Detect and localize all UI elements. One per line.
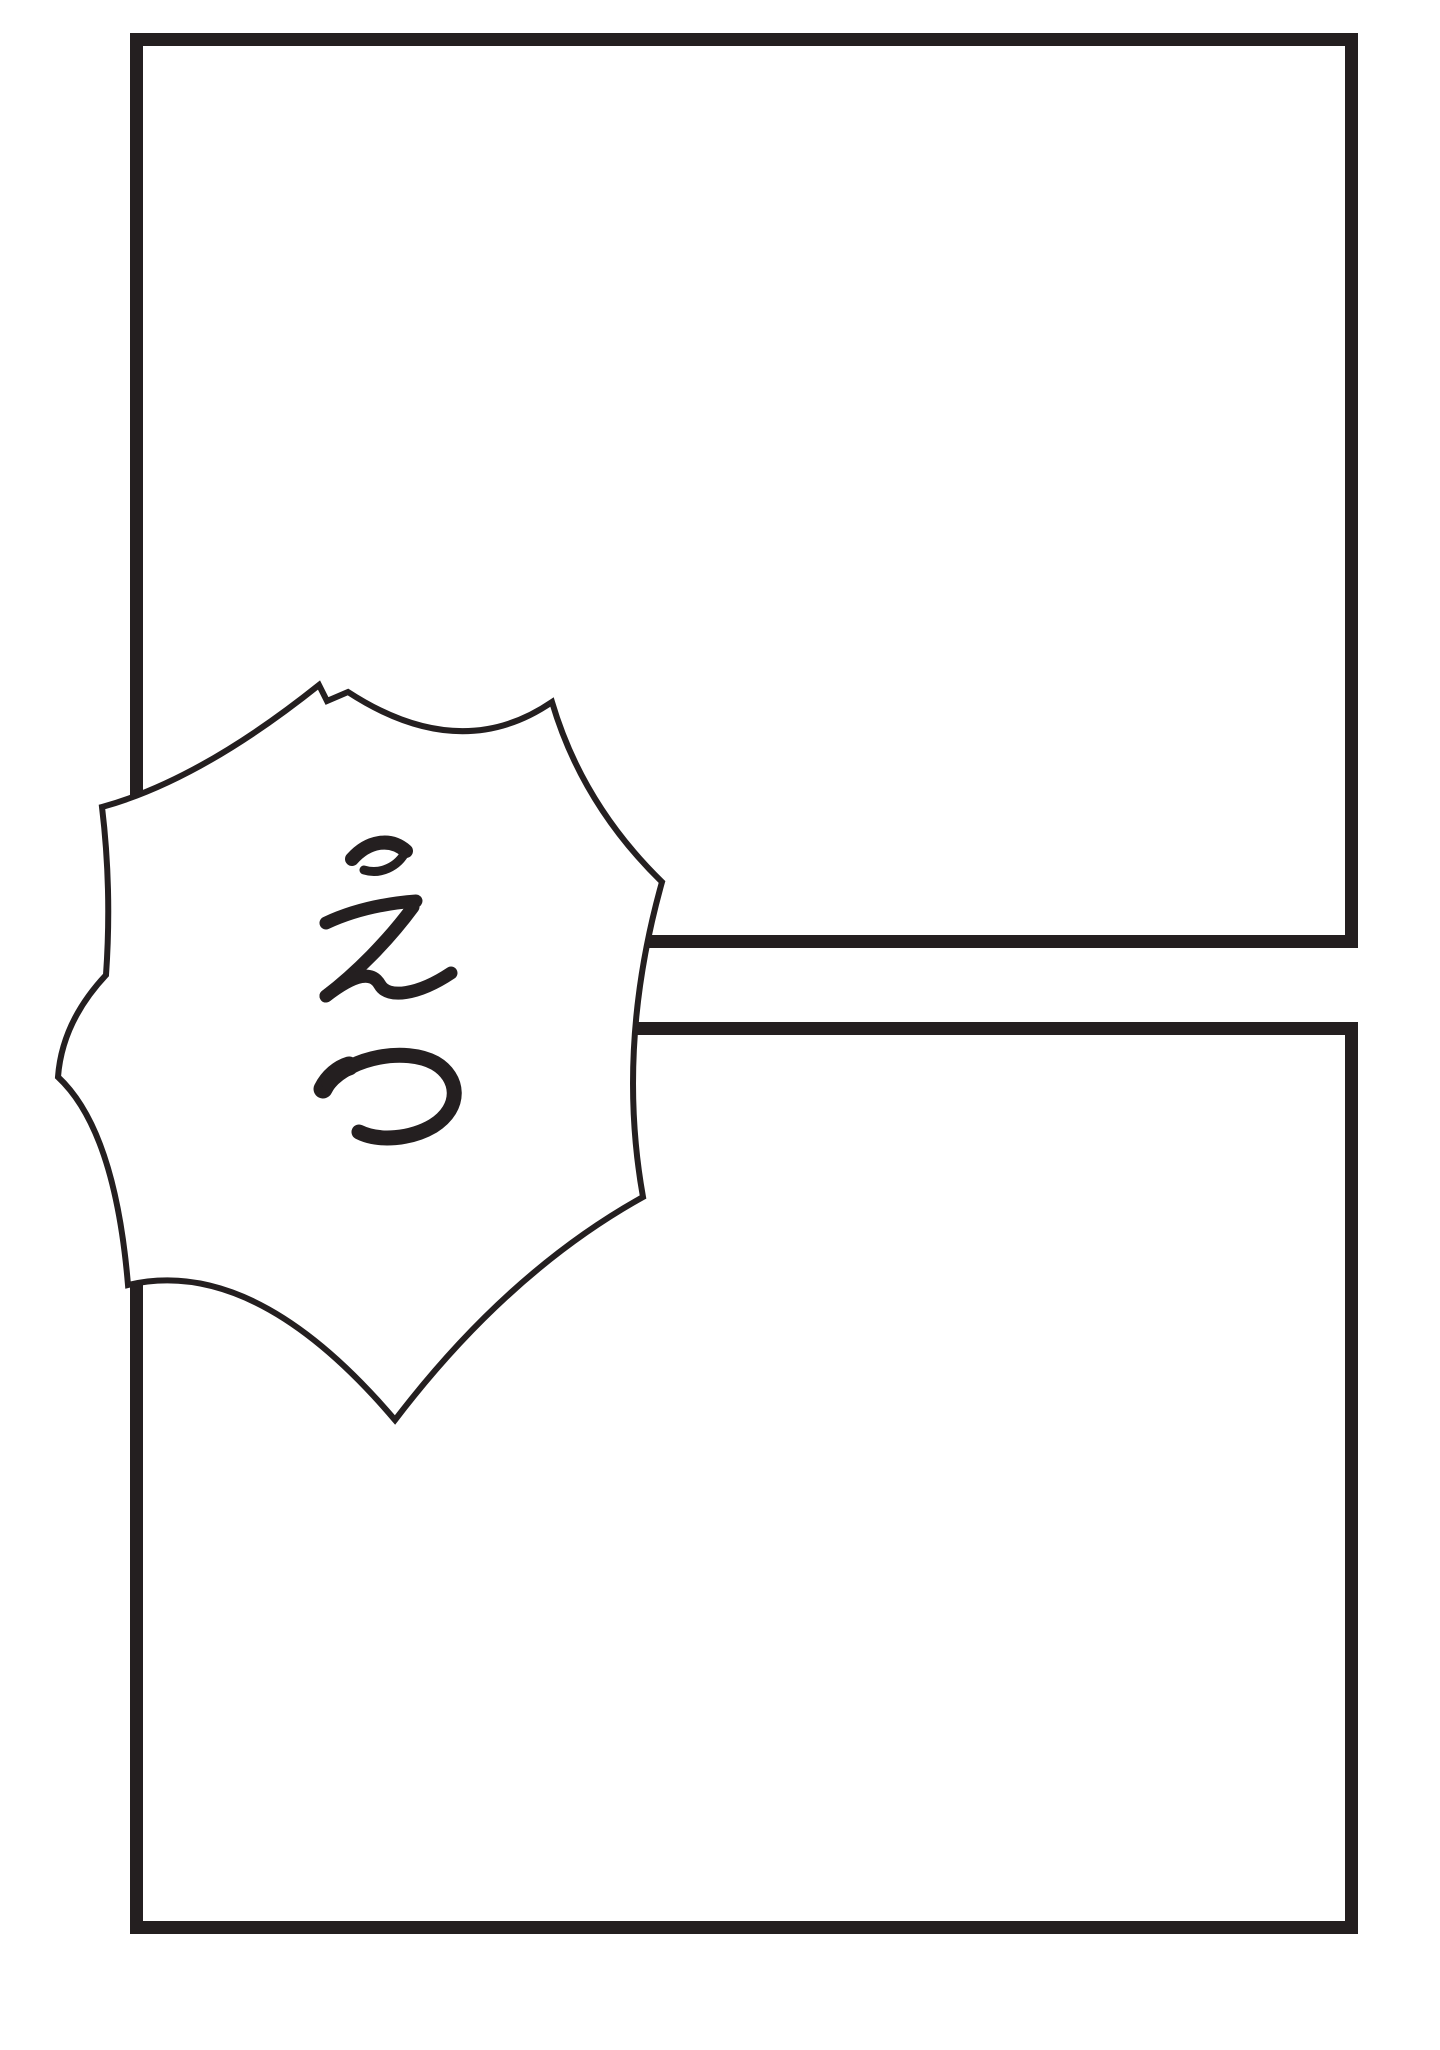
manga-page: えつ え つ えつ [0,0,1440,2050]
bottom-panel [130,1022,1358,1934]
bubble-text-transcription: えつ [0,0,1,1]
top-panel [130,33,1358,948]
